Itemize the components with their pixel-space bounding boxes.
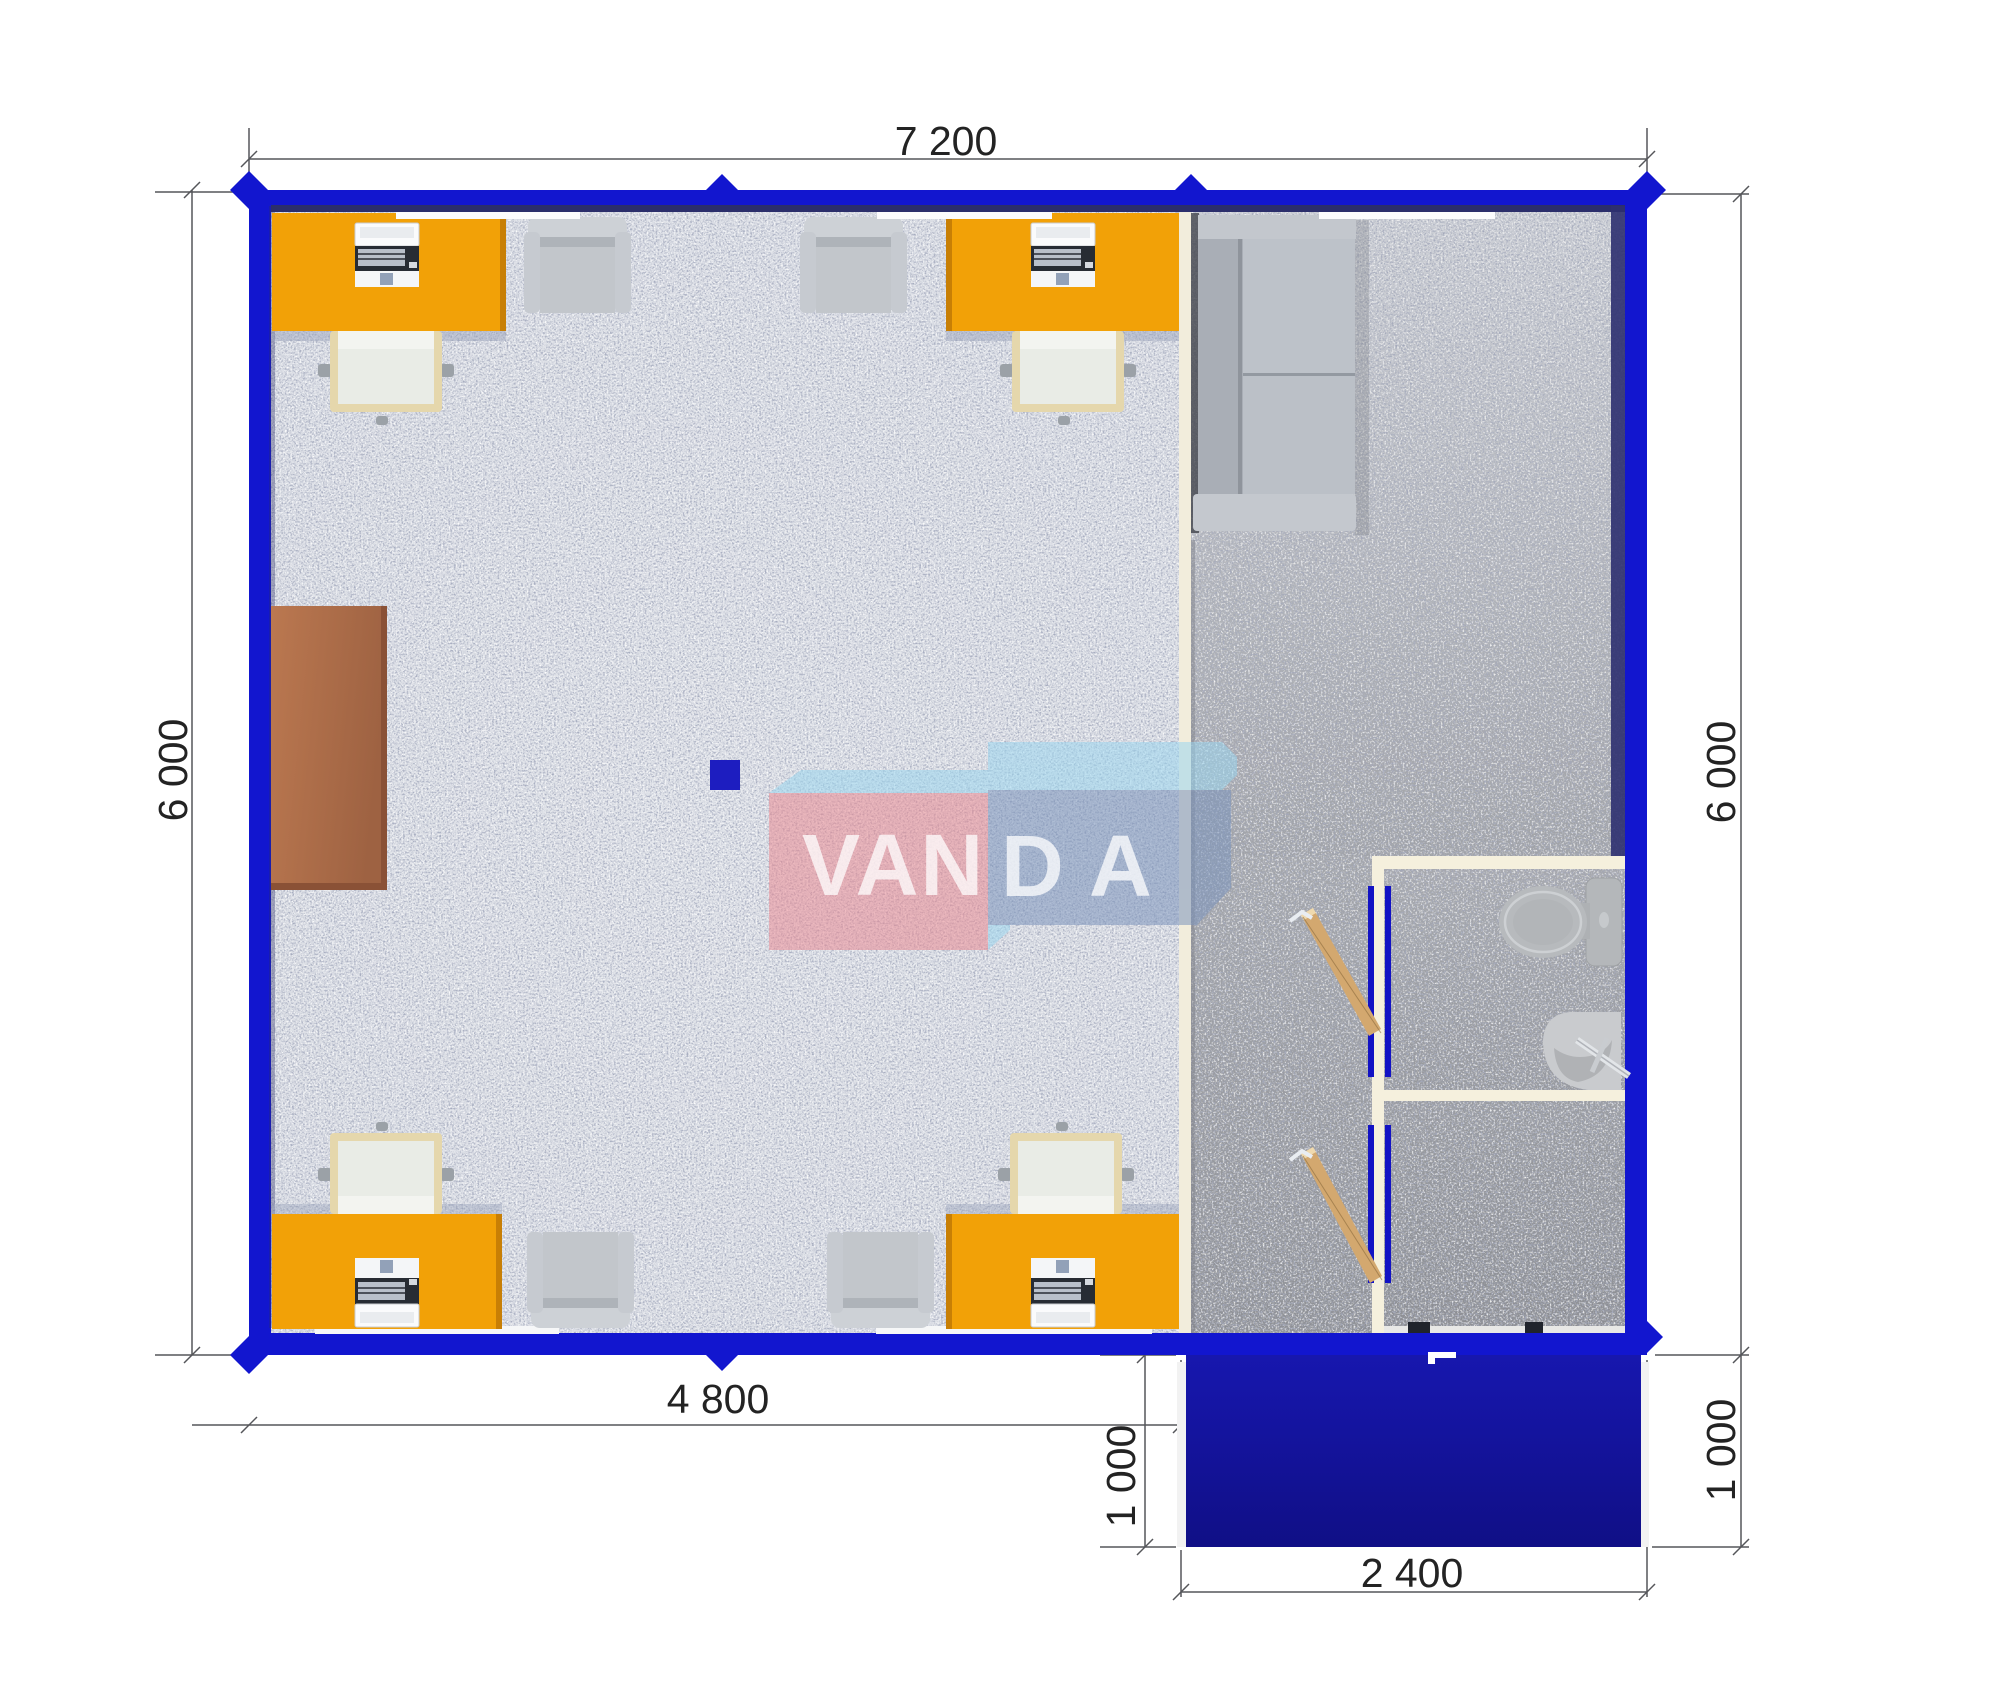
svg-text:6 000: 6 000 [150,719,196,822]
svg-text:1 000: 1 000 [1698,1399,1744,1502]
svg-text:1 000: 1 000 [1098,1425,1144,1528]
svg-text:7 200: 7 200 [895,118,998,164]
svg-text:VAN: VAN [802,817,985,914]
svg-text:A: A [1089,818,1152,915]
svg-text:2 400: 2 400 [1361,1550,1464,1596]
svg-text:6 000: 6 000 [1698,721,1744,824]
svg-text:D: D [1001,818,1064,915]
svg-text:4 800: 4 800 [667,1376,770,1422]
